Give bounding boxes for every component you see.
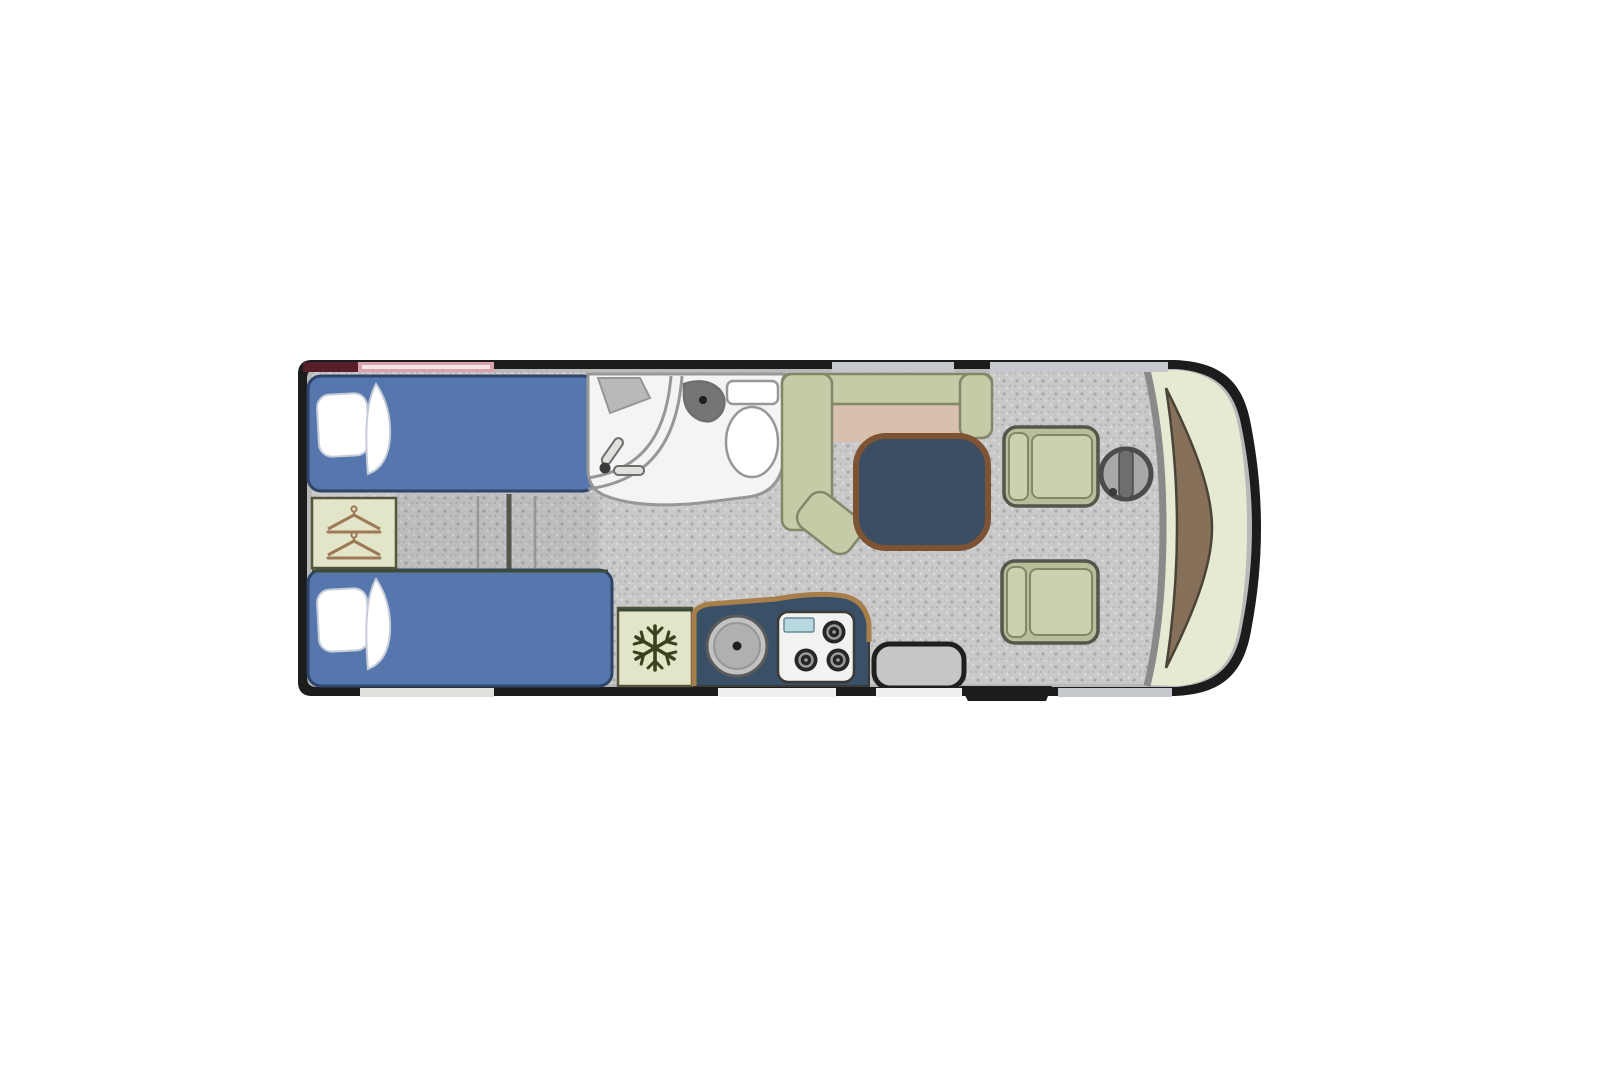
exterior-step bbox=[960, 686, 1052, 701]
window-nearside-kitchen bbox=[718, 688, 836, 697]
sink-drain bbox=[733, 642, 742, 651]
internal-step bbox=[874, 644, 964, 688]
toilet-bowl bbox=[726, 407, 778, 477]
toilet bbox=[726, 381, 778, 477]
door-opening bbox=[876, 688, 962, 697]
three-burner-hob bbox=[778, 612, 854, 682]
washroom bbox=[588, 374, 784, 505]
seat-cushion bbox=[1030, 569, 1092, 635]
basin-drain bbox=[699, 396, 707, 404]
bench-arm-right bbox=[960, 374, 992, 438]
seat-armrest bbox=[1007, 567, 1026, 637]
steering-column bbox=[1119, 450, 1133, 498]
window-offside-cab bbox=[990, 362, 1168, 372]
single-bed-offside bbox=[308, 376, 596, 491]
window-nearside-cab bbox=[1058, 688, 1172, 697]
pillow bbox=[316, 393, 369, 458]
window-nearside-bed bbox=[360, 688, 494, 697]
seat-cushion bbox=[1032, 435, 1092, 498]
driver-swivel-seat bbox=[1004, 427, 1098, 506]
toilet-cistern bbox=[727, 381, 778, 404]
round-sink bbox=[707, 616, 767, 676]
single-bed-nearside bbox=[308, 570, 612, 686]
steering-wheel bbox=[1101, 449, 1151, 499]
wardrobe-with-hangers bbox=[312, 498, 396, 568]
window-rear-corner bbox=[303, 362, 358, 372]
seat-armrest bbox=[1009, 433, 1028, 500]
kitchen-worktop bbox=[694, 594, 869, 686]
pillow bbox=[316, 588, 369, 653]
window-offside-dinette bbox=[832, 362, 954, 372]
hob-drainer bbox=[784, 618, 814, 632]
pedestal-table bbox=[856, 436, 988, 548]
floor-plan-canvas bbox=[0, 0, 1600, 1066]
corridor-shade bbox=[396, 492, 598, 572]
passenger-swivel-seat bbox=[1002, 561, 1098, 643]
refrigerator bbox=[618, 608, 692, 686]
motorhome-floor-plan bbox=[0, 0, 1600, 1066]
